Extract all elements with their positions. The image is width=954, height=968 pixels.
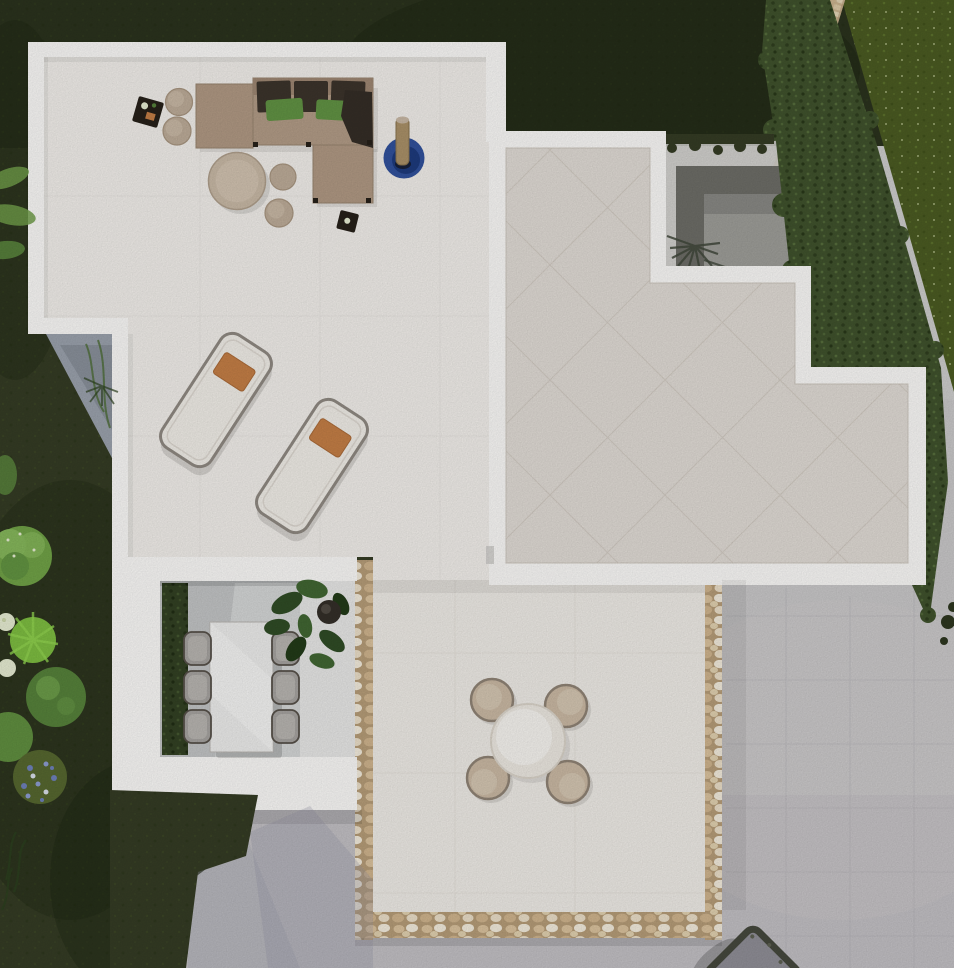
aerial-villa-render xyxy=(0,0,954,968)
grain-overlay xyxy=(0,0,954,968)
render-canvas xyxy=(0,0,954,968)
